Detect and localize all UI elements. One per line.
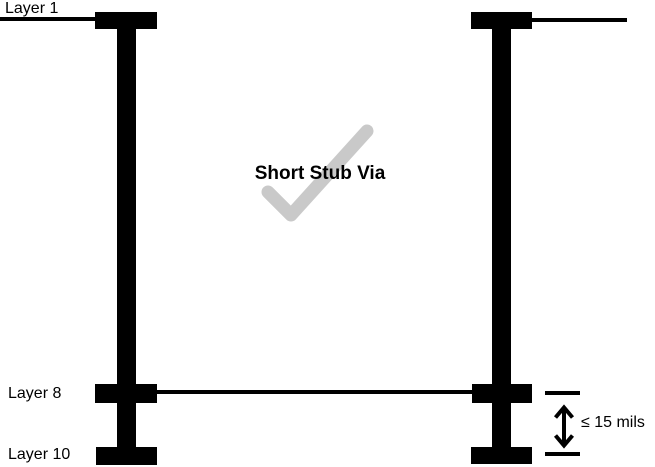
dimension-tick-top	[545, 391, 580, 395]
overlay-graphics	[0, 0, 655, 467]
double-vertical-arrow-icon	[556, 408, 573, 446]
short-stub-via-diagram: Layer 1 Layer 8 Layer 10 Short Stub Via …	[0, 0, 655, 467]
diagram-title: Short Stub Via	[239, 163, 401, 185]
dimension-tick-bottom	[545, 452, 580, 456]
